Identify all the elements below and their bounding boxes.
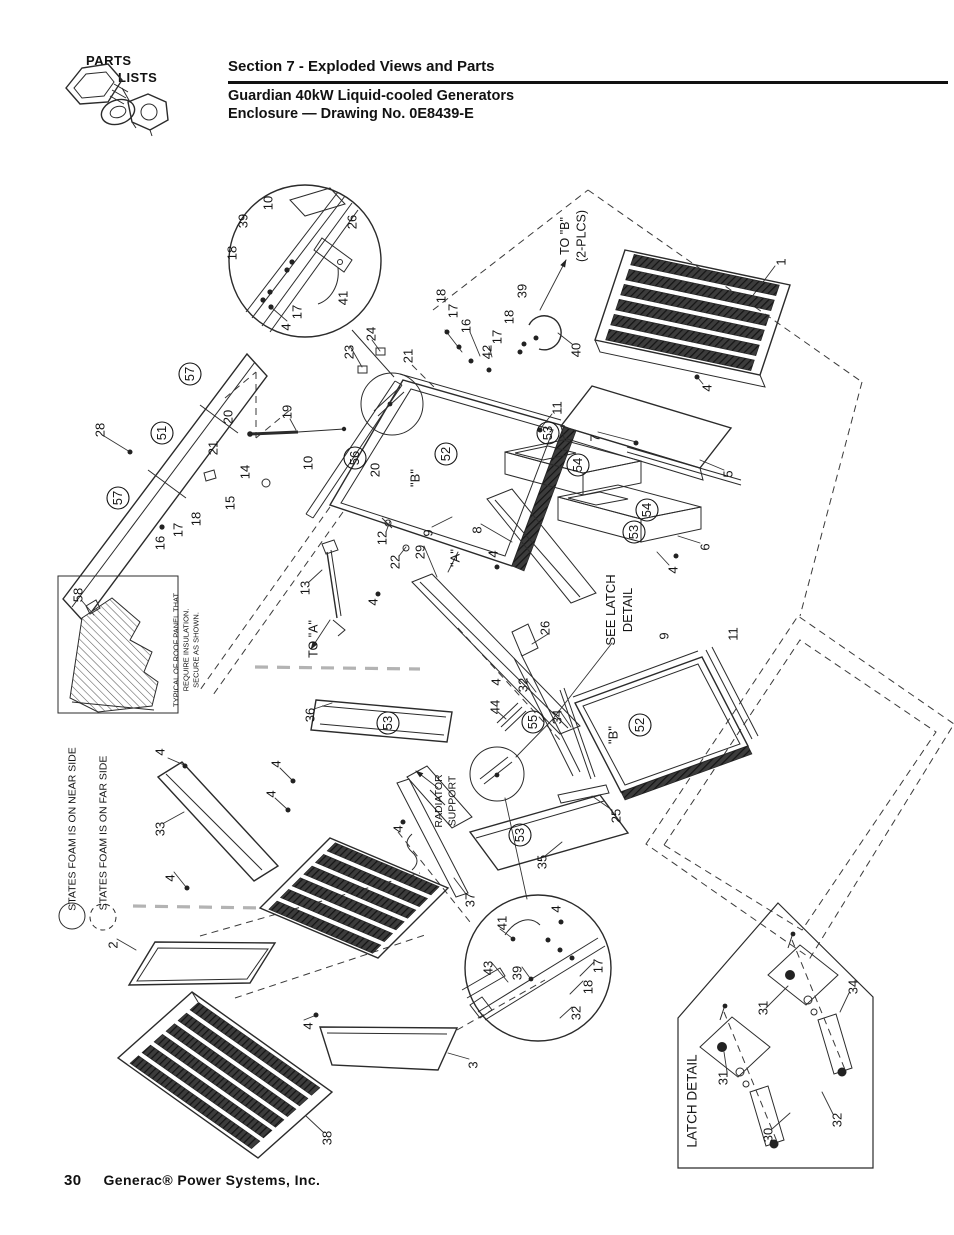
part-callout: 4 <box>163 874 178 881</box>
page-number: 30 <box>64 1172 82 1189</box>
part-callout: 21 <box>401 349 416 363</box>
bracket-26 <box>512 624 538 656</box>
company-name: Generac® Power Systems, Inc. <box>104 1172 321 1188</box>
part-callout: 17 <box>591 959 606 973</box>
part-callout: 4 <box>549 905 564 912</box>
part-callout: 7 <box>588 434 603 441</box>
circled-part-callout: 52 <box>438 447 453 461</box>
part-callout: 4 <box>269 760 284 767</box>
part-callout: 16 <box>459 319 474 333</box>
note-text: LATCH DETAIL <box>685 1054 700 1148</box>
part-callout: 5 <box>721 470 736 477</box>
lid-frame-28 <box>63 354 267 622</box>
part-callout: 39 <box>515 284 530 298</box>
part-callout: 35 <box>535 855 550 869</box>
part-callout: 4 <box>153 748 168 755</box>
part-callout: 15 <box>223 496 238 510</box>
circled-part-callout: 52 <box>632 718 647 732</box>
part-callout: 18 <box>225 246 240 260</box>
part-callout: 31 <box>756 1001 771 1015</box>
circled-part-callout: 53 <box>540 426 555 440</box>
part-callout: 30 <box>761 1128 776 1142</box>
part-callout: 22 <box>388 555 403 569</box>
latch-assembly-left <box>700 1004 784 1149</box>
part-callout: 32 <box>830 1113 845 1127</box>
part-callout: 18 <box>189 512 204 526</box>
part-callout: 26 <box>538 621 553 635</box>
note-text: TYPICAL OF ROOF PANEL THATREQUIRE INSULA… <box>172 593 201 707</box>
part-callout: 41 <box>495 916 510 930</box>
part-callout: "A" <box>448 549 463 567</box>
part-callout: 9 <box>421 529 436 536</box>
part-callout: 4 <box>666 566 681 573</box>
part-callout: 8 <box>470 526 485 533</box>
part-callout: 20 <box>221 410 236 424</box>
part-callout: 1 <box>774 258 789 265</box>
part-callout: 33 <box>153 822 168 836</box>
part-callout: 43 <box>481 961 496 975</box>
note-text: STATES FOAM IS ON FAR SIDE <box>98 756 110 911</box>
note-text: RADIATORSUPPORT <box>433 774 459 828</box>
part-callout: 17 <box>290 305 305 319</box>
manual-page: PARTS LISTS Section 7 - Exploded Views a… <box>0 0 954 1235</box>
part-callout: 2 <box>106 941 121 948</box>
part-callout: 4 <box>366 598 381 605</box>
part-callout: 19 <box>280 405 295 419</box>
part-callout: 4 <box>279 323 294 330</box>
clamp-40 <box>522 260 567 350</box>
part-callout: 10 <box>261 196 276 210</box>
part-callout: 9 <box>657 632 672 639</box>
part-callout: 40 <box>569 343 584 357</box>
note-text: STATES FOAM IS ON NEAR SIDE <box>67 747 79 911</box>
circled-part-callout: 57 <box>110 491 125 505</box>
page-footer: 30Generac® Power Systems, Inc. <box>64 1172 320 1189</box>
part-callout: 4 <box>489 678 504 685</box>
part-callout: 29 <box>413 545 428 559</box>
part-callout: "B" <box>408 469 423 487</box>
part-callout: 26 <box>345 215 360 229</box>
part-callout: 37 <box>463 893 478 907</box>
circled-part-callout: 55 <box>525 715 540 729</box>
part-callout: 18 <box>434 289 449 303</box>
base-frame-phantom <box>646 616 954 958</box>
clip-23 <box>358 366 367 373</box>
screws <box>128 330 700 1018</box>
part-callout: 4 <box>301 1022 316 1029</box>
panel-2 <box>129 942 275 985</box>
note-text: SEE LATCHDETAIL <box>603 574 635 645</box>
latch-assembly-right <box>768 932 852 1077</box>
tray-7 <box>561 386 731 480</box>
gas-spring-19 <box>247 427 346 437</box>
part-callout: 4 <box>391 825 406 832</box>
part-callout: 32 <box>569 1006 584 1020</box>
part-callout: 28 <box>93 423 108 437</box>
part-callout: 25 <box>609 809 624 823</box>
part-callout: 34 <box>846 980 861 994</box>
part-callout: 18 <box>581 980 596 994</box>
note-text: TO "B"(2-PLCS) <box>558 210 589 262</box>
part-callout: 41 <box>336 291 351 305</box>
part-callout: 31 <box>716 1071 731 1085</box>
part-callout: 36 <box>303 708 318 722</box>
latch-detail-box <box>678 903 873 1168</box>
part-callout: 44 <box>488 700 503 714</box>
part-callout: 14 <box>238 465 253 479</box>
rail-5 <box>627 447 741 485</box>
part-callout: 4 <box>486 550 501 557</box>
note-text: TO "A" <box>306 620 320 658</box>
bumper-15 <box>204 470 216 481</box>
part-callout: 20 <box>368 463 383 477</box>
part-callout: 16 <box>153 536 168 550</box>
part-callout: 18 <box>502 310 517 324</box>
part-callout: 42 <box>480 345 495 359</box>
part-callout: 13 <box>298 581 313 595</box>
part-callout: "B" <box>606 726 621 744</box>
part-callout: 39 <box>236 214 251 228</box>
part-callout: 24 <box>364 327 379 341</box>
part-callout: 21 <box>206 441 221 455</box>
exploded-view-drawing: 1039182641174232421181716421718394014752… <box>0 0 954 1235</box>
part-callout: 32 <box>516 678 531 692</box>
part-callout: 4 <box>700 384 715 391</box>
part-callout: 38 <box>320 1131 335 1145</box>
gas-spring-13 <box>322 540 345 636</box>
part-callout: 23 <box>342 345 357 359</box>
circled-part-callout: 56 <box>347 451 362 465</box>
part-callout: 34 <box>550 710 565 724</box>
circled-part-callout: 57 <box>182 367 197 381</box>
part-callout: 3 <box>466 1061 481 1068</box>
hinge-channel-10 <box>306 381 402 518</box>
part-callout: 4 <box>264 790 279 797</box>
panel-3 <box>320 1027 457 1070</box>
part-callout: 10 <box>301 456 316 470</box>
part-callout: 11 <box>550 401 565 415</box>
circled-part-callout: 53 <box>626 525 641 539</box>
part-callout: 11 <box>726 627 741 641</box>
part-callout: 17 <box>171 523 186 537</box>
panel-33 <box>158 762 278 881</box>
clip-24 <box>376 348 385 355</box>
top-detail-circle <box>229 185 394 377</box>
part-callout: 58 <box>71 588 86 602</box>
part-callout: 17 <box>490 330 505 344</box>
circled-part-callout: 54 <box>639 503 654 517</box>
circled-part-callout: 53 <box>380 716 395 730</box>
circled-part-callout: 53 <box>512 828 527 842</box>
circled-part-callout: 51 <box>154 426 169 440</box>
part-callout: 6 <box>698 543 713 550</box>
door-panel-b-right <box>573 647 758 800</box>
circled-part-callout: 54 <box>570 458 585 472</box>
part-callout: 39 <box>510 966 525 980</box>
bumper-14 <box>262 479 270 487</box>
part-callout: 12 <box>375 531 390 545</box>
part-callout: 17 <box>446 304 461 318</box>
